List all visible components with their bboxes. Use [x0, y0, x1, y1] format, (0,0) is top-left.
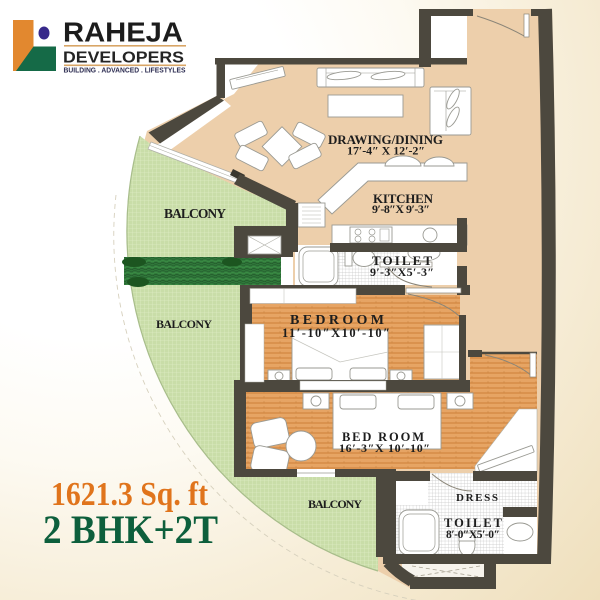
svg-text:16′-3″X 10′-10″: 16′-3″X 10′-10″ [339, 441, 430, 455]
svg-text:RAHEJA: RAHEJA [63, 17, 183, 48]
svg-text:9′-3″X5′-3″: 9′-3″X5′-3″ [370, 265, 434, 279]
svg-text:DEVELOPERS: DEVELOPERS [63, 50, 184, 67]
svg-text:DRESS: DRESS [456, 492, 498, 504]
svg-text:2 BHK+2T: 2 BHK+2T [43, 507, 218, 552]
svg-text:11′-10″X10′-10″: 11′-10″X10′-10″ [282, 326, 390, 340]
svg-text:BALCONY: BALCONY [156, 317, 212, 331]
svg-text:17′-4″ X 12′-2″: 17′-4″ X 12′-2″ [347, 144, 425, 158]
svg-text:BALCONY: BALCONY [164, 206, 226, 221]
svg-text:BALCONY: BALCONY [308, 497, 362, 511]
svg-text:BUILDING . ADVANCED . LIFESTYL: BUILDING . ADVANCED . LIFESTYLES [64, 68, 186, 75]
svg-text:8′-0″X5′-0″: 8′-0″X5′-0″ [446, 529, 500, 541]
svg-text:9′-8″X 9′-3″: 9′-8″X 9′-3″ [372, 202, 430, 216]
